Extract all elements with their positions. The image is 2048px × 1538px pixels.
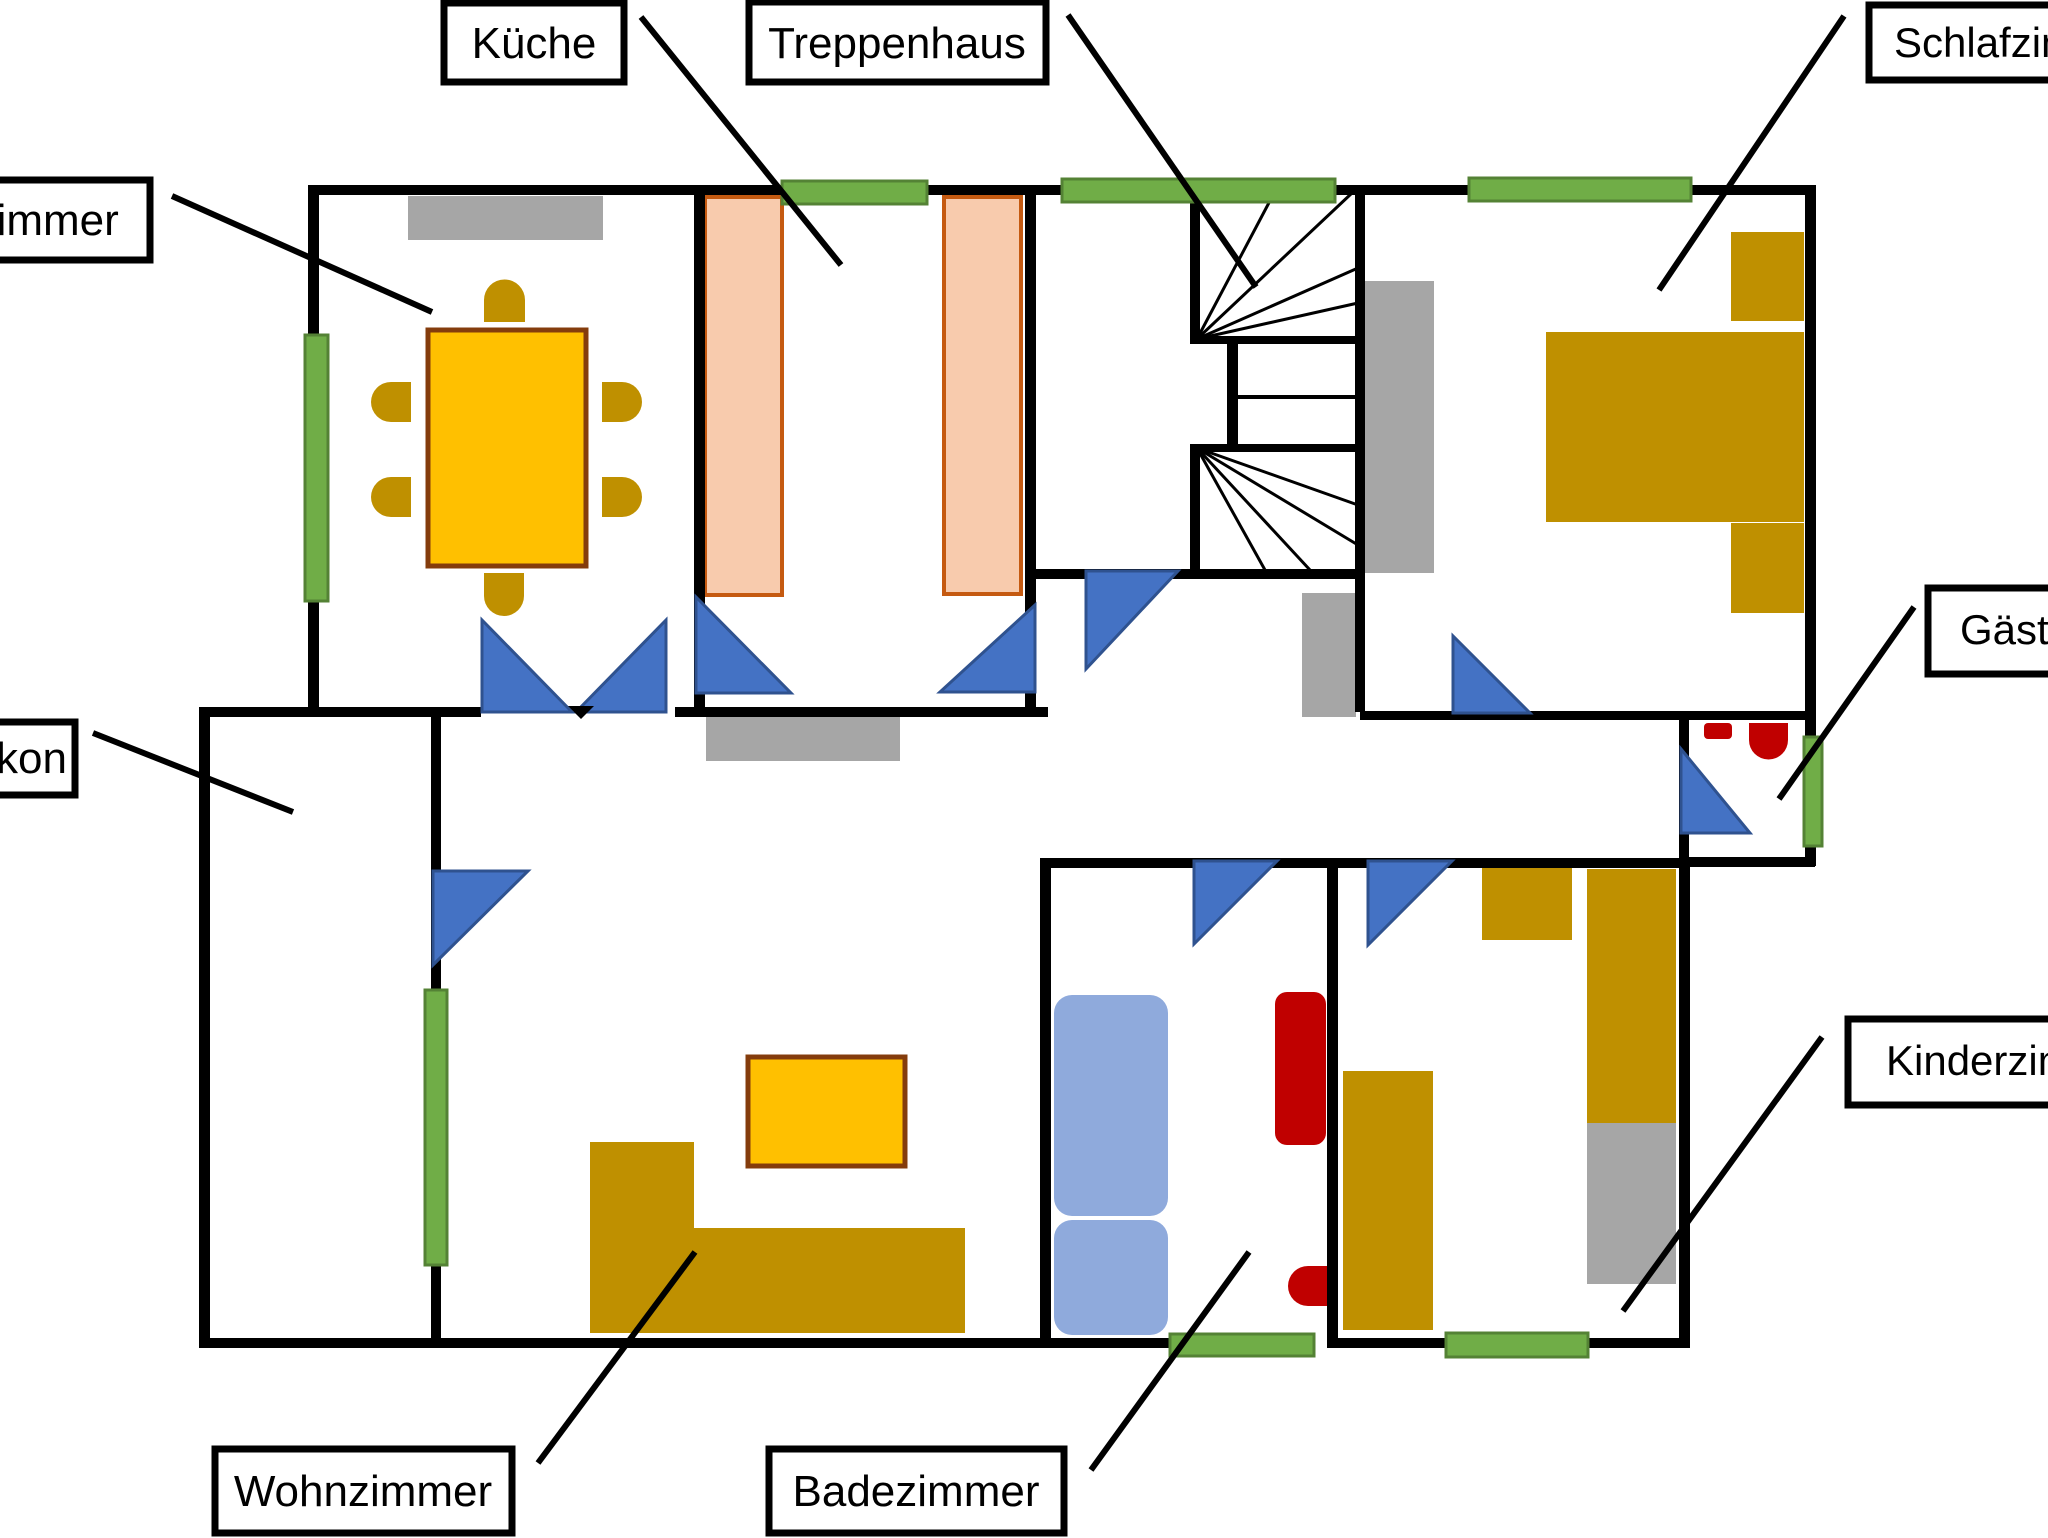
svg-text:Badezimmer: Badezimmer bbox=[793, 1467, 1040, 1516]
svg-text:Treppenhaus: Treppenhaus bbox=[768, 19, 1026, 68]
svg-text:Balkon: Balkon bbox=[0, 734, 67, 783]
svg-text:Schlafzimmer: Schlafzimmer bbox=[1894, 19, 2048, 66]
svg-text:Küche: Küche bbox=[472, 19, 597, 68]
svg-text:Wohnzimmer: Wohnzimmer bbox=[234, 1467, 492, 1516]
svg-text:Esszimmer: Esszimmer bbox=[0, 196, 119, 245]
svg-text:Gäste-WC: Gäste-WC bbox=[1960, 606, 2048, 653]
svg-text:Kinderzimmer: Kinderzimmer bbox=[1886, 1037, 2048, 1084]
